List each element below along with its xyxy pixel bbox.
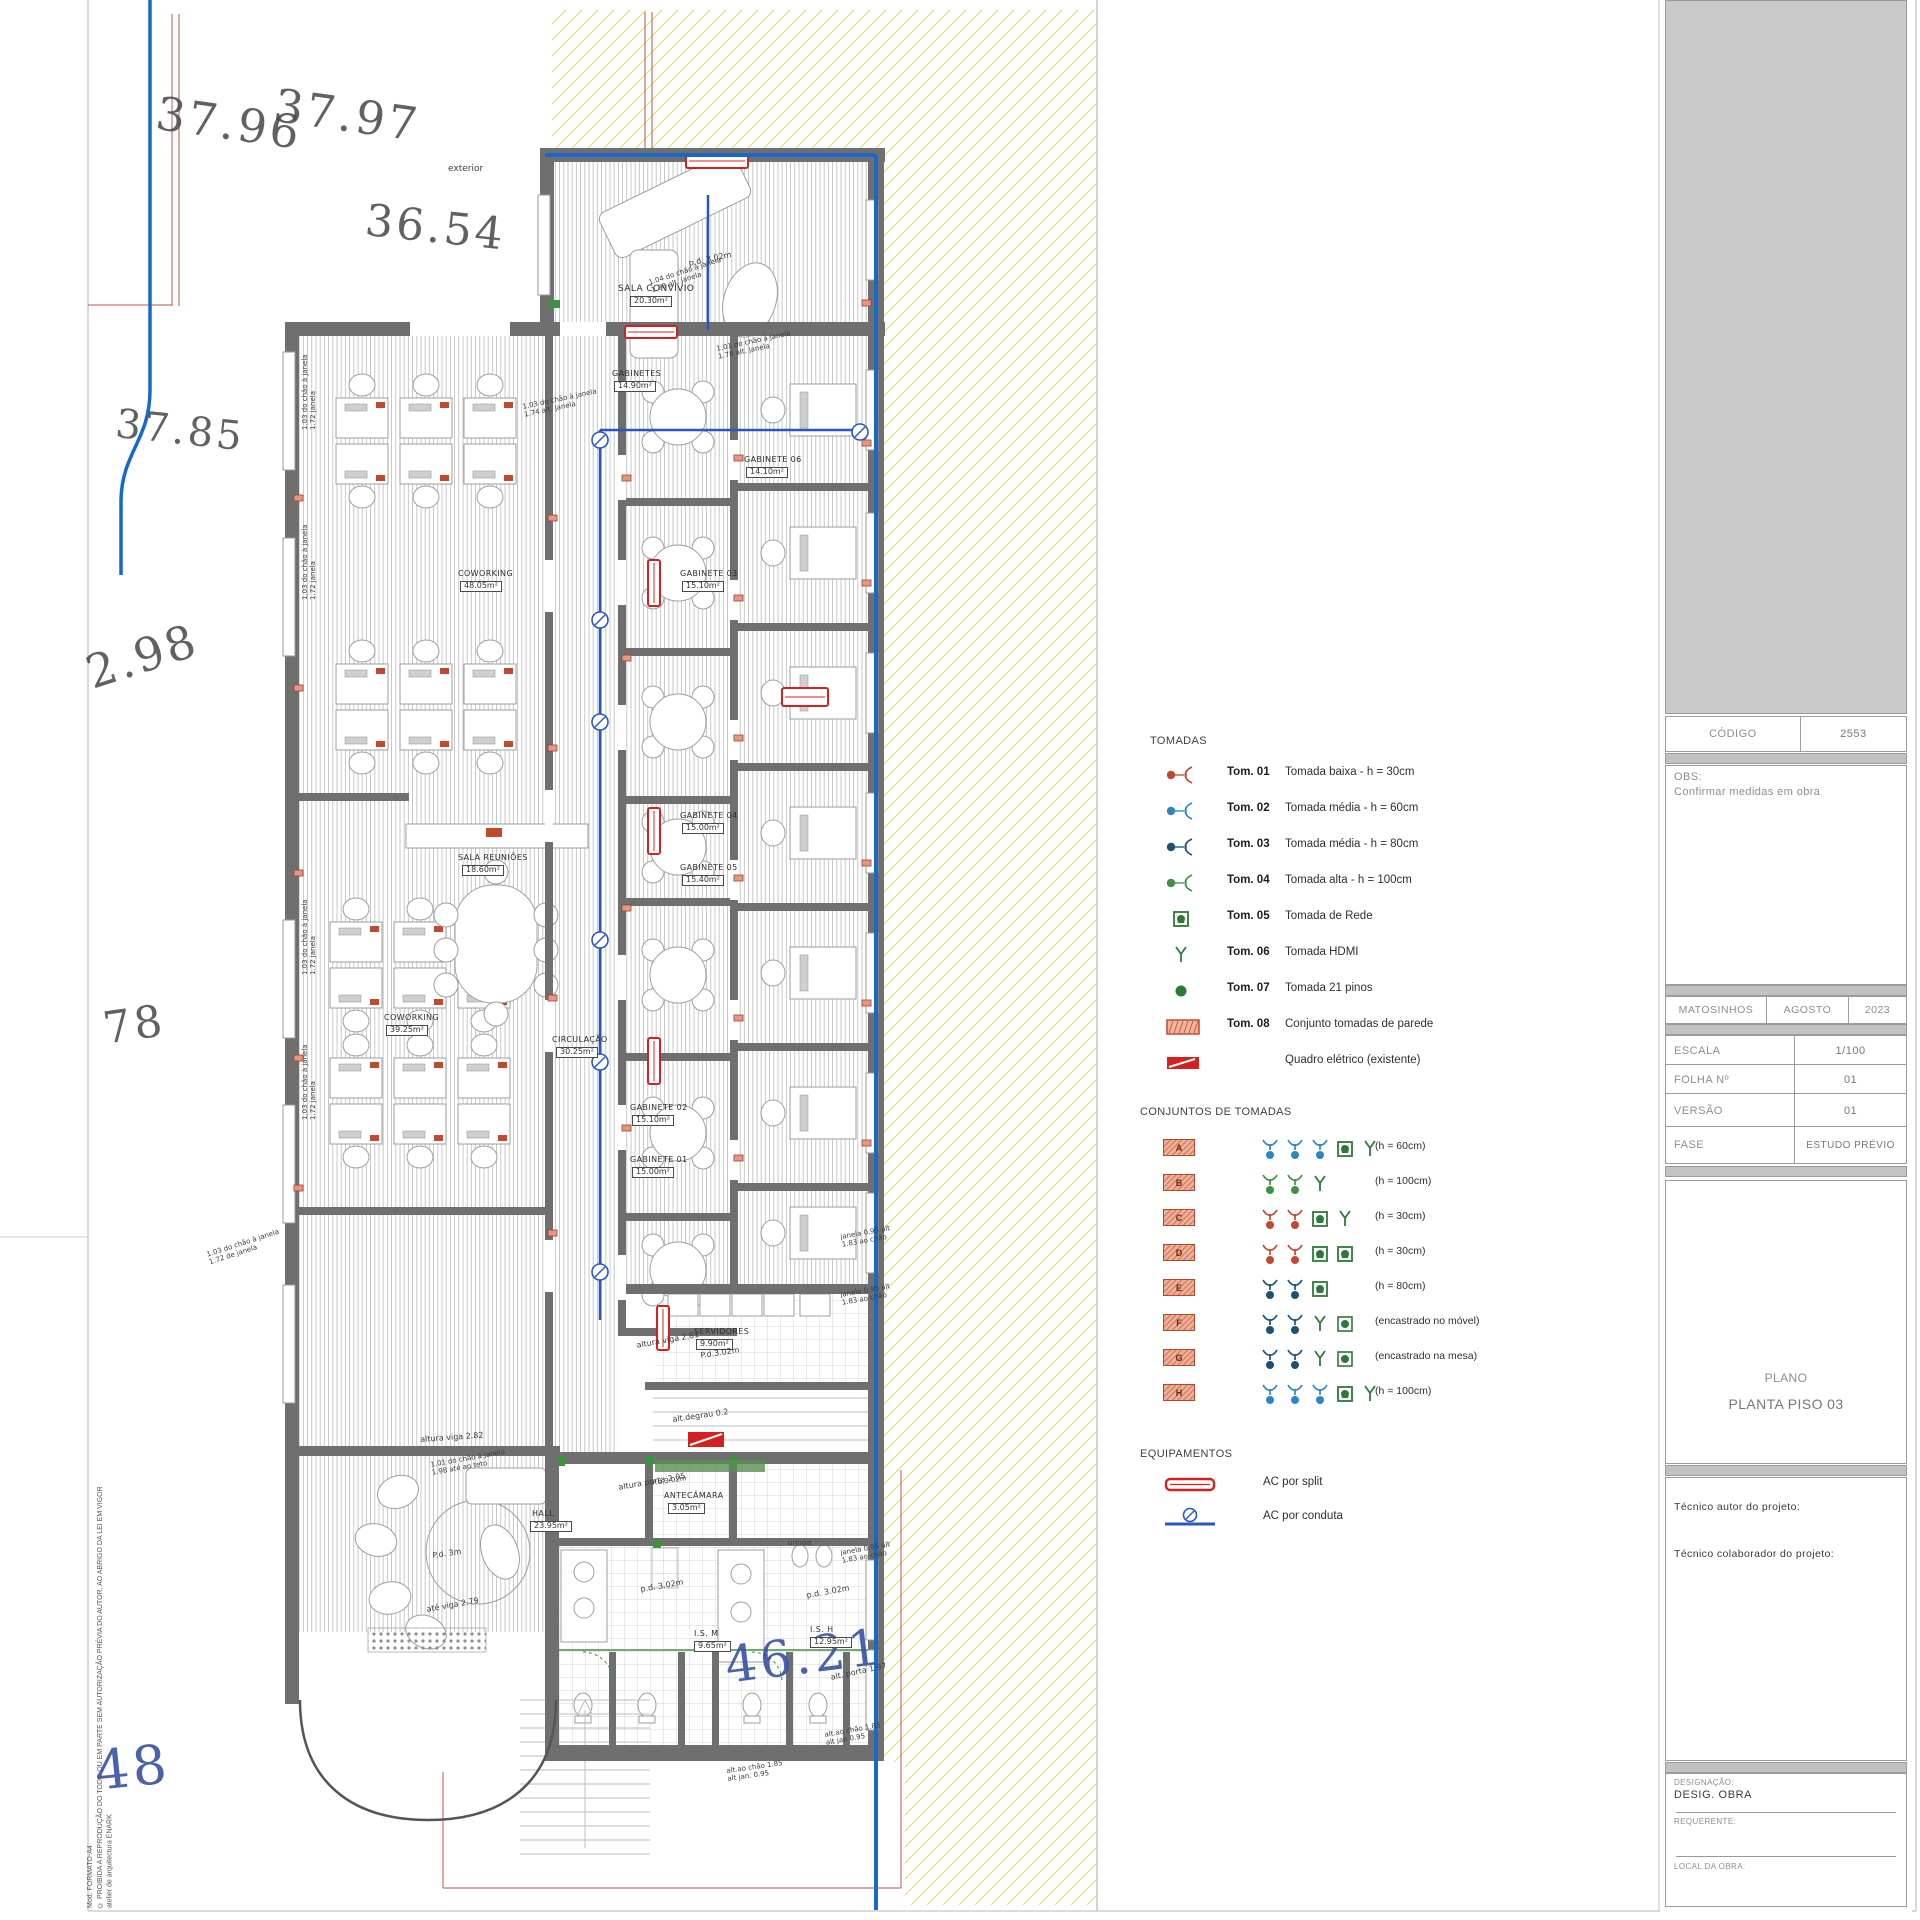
legend-item: Quadro elétrico (existente) xyxy=(1165,1050,1465,1080)
local-obra-label: LOCAL DA OBRA: xyxy=(1674,1862,1746,1871)
sheet-margin-text: Mod. FORMATO-A4 © PROIBIDA A REPRODUÇÃO … xyxy=(86,1180,115,1908)
legend-title-conjuntos: CONJUNTOS DE TOMADAS xyxy=(1140,1106,1292,1118)
room-area-label: 12.95m² xyxy=(810,1637,852,1648)
legend-item-code: Tom. 08 xyxy=(1227,1018,1270,1030)
plan-label: COWORKING xyxy=(458,570,513,579)
conjunto-badge: E xyxy=(1163,1279,1195,1296)
pinos-icon xyxy=(1165,978,1205,1009)
designacao-box: DESIGNAÇÃO: DESIG. OBRA REQUERENTE: LOCA… xyxy=(1665,1773,1907,1907)
plan-label: GABINETE 06 xyxy=(744,456,802,465)
socket-icon xyxy=(1165,834,1205,865)
plan-label: GABINETES xyxy=(612,370,661,379)
room-area-label: 23.95m² xyxy=(530,1521,572,1532)
hdmi-icon xyxy=(1165,942,1205,973)
tecnicos-box: Técnico autor do projeto: Técnico colabo… xyxy=(1665,1477,1907,1761)
equip-item: AC por split xyxy=(1163,1472,1463,1502)
room-area-label: 15.10m² xyxy=(632,1115,674,1126)
room-area-label: 15.40m² xyxy=(682,875,724,886)
plan-label: SALA REUNIÕES xyxy=(458,854,528,863)
conjunto-note: (encastrado na mesa) xyxy=(1375,1350,1477,1362)
divider-bar xyxy=(1665,1465,1907,1476)
legend-item-desc: Conjunto tomadas de parede xyxy=(1285,1018,1433,1030)
legend-item: Tom. 04Tomada alta - h = 100cm xyxy=(1165,870,1465,900)
fase-row: FASE ESTUDO PRÉVIO xyxy=(1665,1126,1907,1164)
legend-item: Tom. 05Tomada de Rede xyxy=(1165,906,1465,936)
plan-label: 1.03 do chão à janela 1.72 janela xyxy=(302,899,318,975)
conjunto-badge: H xyxy=(1163,1384,1195,1401)
legend-item-desc: Tomada média - h = 60cm xyxy=(1285,802,1418,814)
conjunto-row: H(h = 100cm) xyxy=(1163,1381,1493,1411)
versao-value: 01 xyxy=(1795,1094,1906,1127)
legend-item-desc: Tomada HDMI xyxy=(1285,946,1359,958)
codigo-row: CÓDIGO 2553 xyxy=(1665,716,1907,752)
conjunto-symbols-icon xyxy=(1258,1381,1388,1412)
divider-bar xyxy=(1665,1024,1907,1035)
legend-item-desc: Tomada baixa - h = 30cm xyxy=(1285,766,1414,778)
plan-label: I.S. H xyxy=(810,1626,833,1635)
conjunto-note: (h = 100cm) xyxy=(1375,1175,1431,1187)
plano-box: PLANO PLANTA PISO 03 xyxy=(1665,1180,1907,1464)
conjunto-row: F(encastrado no móvel) xyxy=(1163,1311,1493,1341)
conjunto-symbols-icon xyxy=(1258,1171,1388,1202)
title-block: CÓDIGO 2553 OBS: Confirmar medidas em ob… xyxy=(1660,0,1912,1912)
room-area-label: 14.90m² xyxy=(614,381,656,392)
tecnico-colaborador-label: Técnico colaborador do projeto: xyxy=(1674,1548,1834,1560)
room-area-label: 3.05m² xyxy=(668,1503,705,1514)
obs-text: Confirmar medidas em obra xyxy=(1674,786,1820,798)
plan-label: urinóis xyxy=(788,1540,812,1548)
conjunto-symbols-icon xyxy=(1258,1206,1388,1237)
escala-row: ESCALA 1/100 xyxy=(1665,1035,1907,1066)
conjunto-badge: F xyxy=(1163,1314,1195,1331)
legend-item-code: Tom. 06 xyxy=(1227,946,1270,958)
obs-box: OBS: Confirmar medidas em obra xyxy=(1665,765,1907,985)
room-area-label: 30.25m² xyxy=(556,1047,598,1058)
legend-item-code: Tom. 01 xyxy=(1227,766,1270,778)
plan-label: 1.03 do chão à janela 1.72 janela xyxy=(302,1044,318,1120)
divider-line xyxy=(1676,1856,1896,1857)
conjunto-symbols-icon xyxy=(1258,1311,1388,1342)
plan-label: GABINETE 03 xyxy=(680,570,738,579)
plan-label: 1.03 do chão à janela 1.72 janela xyxy=(302,524,318,600)
versao-row: VERSÃO 01 xyxy=(1665,1093,1907,1128)
legend-title-equipamentos: EQUIPAMENTOS xyxy=(1140,1448,1232,1460)
conjunto-symbols-icon xyxy=(1258,1276,1388,1307)
survey-elevation-number: 78 xyxy=(100,996,168,1053)
equip-item: AC por conduta xyxy=(1163,1506,1463,1536)
date-row: MATOSINHOS AGOSTO 2023 xyxy=(1665,996,1907,1024)
conjunto-note: (encastrado no móvel) xyxy=(1375,1315,1479,1327)
ac-conduta-icon xyxy=(1163,1506,1219,1535)
city-cell: MATOSINHOS xyxy=(1666,997,1767,1023)
conjunto-badge: B xyxy=(1163,1174,1195,1191)
plan-label: 1.03 do chão à janela 1.72 janela xyxy=(302,354,318,430)
room-area-label: 15.00m² xyxy=(682,823,724,834)
equip-label: AC por conduta xyxy=(1263,1510,1343,1522)
room-area-label: 48.05m² xyxy=(460,581,502,592)
legend-item-desc: Tomada média - h = 80cm xyxy=(1285,838,1418,850)
divider-bar xyxy=(1665,985,1907,996)
plano-label: PLANO xyxy=(1666,1371,1906,1385)
year-cell: 2023 xyxy=(1849,997,1906,1023)
room-area-label: 18.60m² xyxy=(462,865,504,876)
plan-label: ANTECÂMARA xyxy=(664,1492,724,1501)
legend-item-code: Tom. 05 xyxy=(1227,910,1270,922)
socket-icon xyxy=(1165,798,1205,829)
socket-icon xyxy=(1165,870,1205,901)
legend-item-code: Tom. 03 xyxy=(1227,838,1270,850)
conjunto-note: (h = 30cm) xyxy=(1375,1210,1425,1222)
tecnico-autor-label: Técnico autor do projeto: xyxy=(1674,1501,1800,1513)
conjunto-symbols-icon xyxy=(1258,1136,1388,1167)
escala-value: 1/100 xyxy=(1795,1036,1906,1065)
drawing-sheet: 37.9637.9736.5437.852.98784846.21exterio… xyxy=(0,0,1920,1920)
conjunto-row: E(h = 80cm) xyxy=(1163,1276,1493,1306)
rede-icon xyxy=(1165,906,1205,937)
room-area-label: 14.10m² xyxy=(746,467,788,478)
room-area-label: 9.65m² xyxy=(694,1641,731,1652)
conjunto-row: D(h = 30cm) xyxy=(1163,1241,1493,1271)
conjunto-badge: A xyxy=(1163,1139,1195,1156)
margin-line-copyright: © PROIBIDA A REPRODUÇÃO DO TODO OU EM PA… xyxy=(96,1180,106,1908)
requerente-label: REQUERENTE: xyxy=(1674,1817,1736,1826)
legend-item: Tom. 03Tomada média - h = 80cm xyxy=(1165,834,1465,864)
folha-value: 01 xyxy=(1795,1065,1906,1094)
folha-label: FOLHA Nº xyxy=(1666,1065,1795,1094)
plan-label: GABINETE 01 xyxy=(630,1156,688,1165)
conjunto-row: C(h = 30cm) xyxy=(1163,1206,1493,1236)
legend-item: Tom. 07Tomada 21 pinos xyxy=(1165,978,1465,1008)
fase-label: FASE xyxy=(1666,1127,1795,1163)
ac-split-icon xyxy=(1163,1472,1219,1501)
plan-label: GABINETE 04 xyxy=(680,812,738,821)
conjunto-note: (h = 60cm) xyxy=(1375,1140,1425,1152)
legend-item-desc: Tomada 21 pinos xyxy=(1285,982,1373,994)
conjunto-symbols-icon xyxy=(1258,1241,1388,1272)
plan-label: GABINETE 05 xyxy=(680,864,738,873)
divider-line xyxy=(1676,1812,1896,1813)
legend-item: Tom. 01Tomada baixa - h = 30cm xyxy=(1165,762,1465,792)
month-cell: AGOSTO xyxy=(1767,997,1849,1023)
floor-plan-drawing xyxy=(0,0,1920,1920)
legend-item: Tom. 08Conjunto tomadas de parede xyxy=(1165,1014,1465,1044)
codigo-label: CÓDIGO xyxy=(1666,717,1801,751)
plan-label: exterior xyxy=(448,164,483,174)
room-area-label: 15.00m² xyxy=(632,1167,674,1178)
plano-value: PLANTA PISO 03 xyxy=(1666,1396,1906,1412)
conjunto-badge: C xyxy=(1163,1209,1195,1226)
divider-bar xyxy=(1665,753,1907,764)
designacao-value: DESIG. OBRA xyxy=(1674,1789,1752,1801)
legend-item: Tom. 02Tomada média - h = 60cm xyxy=(1165,798,1465,828)
legend-item-desc: Tomada alta - h = 100cm xyxy=(1285,874,1412,886)
divider-bar xyxy=(1665,1762,1907,1773)
legend-item-code: Tom. 02 xyxy=(1227,802,1270,814)
legend-item-desc: Tomada de Rede xyxy=(1285,910,1373,922)
legend-item-desc: Quadro elétrico (existente) xyxy=(1285,1054,1421,1066)
plan-label: HALL xyxy=(532,1510,554,1519)
conjunto-badge: G xyxy=(1163,1349,1195,1366)
conjunto-note: (h = 100cm) xyxy=(1375,1385,1431,1397)
room-area-label: 39.25m² xyxy=(386,1025,428,1036)
legend-item: Tom. 06Tomada HDMI xyxy=(1165,942,1465,972)
conjunto-note: (h = 30cm) xyxy=(1375,1245,1425,1257)
conjunto-note: (h = 80cm) xyxy=(1375,1280,1425,1292)
conjunto-symbols-icon xyxy=(1258,1346,1388,1377)
margin-line-atelier: atelier de arquitectura ENARK xyxy=(106,1180,116,1908)
designacao-label: DESIGNAÇÃO: xyxy=(1674,1778,1734,1787)
obs-label: OBS: xyxy=(1674,771,1702,783)
conjunto-row: A(h = 60cm) xyxy=(1163,1136,1493,1166)
conjunto-row: G(encastrado na mesa) xyxy=(1163,1346,1493,1376)
room-area-label: 15.10m² xyxy=(682,581,724,592)
folha-row: FOLHA Nº 01 xyxy=(1665,1064,1907,1095)
legend-item-code: Tom. 04 xyxy=(1227,874,1270,886)
quadro-icon xyxy=(1165,1050,1205,1081)
socket-icon xyxy=(1165,762,1205,793)
divider-bar xyxy=(1665,1166,1907,1177)
legend-title-tomadas: TOMADAS xyxy=(1150,735,1207,747)
fase-value: ESTUDO PRÉVIO xyxy=(1795,1127,1906,1163)
room-area-label: 20.30m² xyxy=(630,296,672,307)
title-block-logo-area xyxy=(1665,0,1907,714)
plan-label: GABINETE 02 xyxy=(630,1104,688,1113)
margin-line-format: Mod. FORMATO-A4 xyxy=(86,1180,96,1908)
plan-label: CIRCULAÇÃO xyxy=(552,1036,608,1045)
plan-label: SERVIDORES xyxy=(694,1328,749,1337)
equip-label: AC por split xyxy=(1263,1476,1322,1488)
plan-label: COWORKING xyxy=(384,1014,439,1023)
conjunto-badge: D xyxy=(1163,1244,1195,1261)
versao-label: VERSÃO xyxy=(1666,1094,1795,1127)
badge-icon xyxy=(1165,1014,1205,1045)
conjunto-row: B(h = 100cm) xyxy=(1163,1171,1493,1201)
legend-item-code: Tom. 07 xyxy=(1227,982,1270,994)
codigo-value: 2553 xyxy=(1801,717,1906,751)
escala-label: ESCALA xyxy=(1666,1036,1795,1065)
plan-label: I.S. M xyxy=(694,1630,718,1639)
